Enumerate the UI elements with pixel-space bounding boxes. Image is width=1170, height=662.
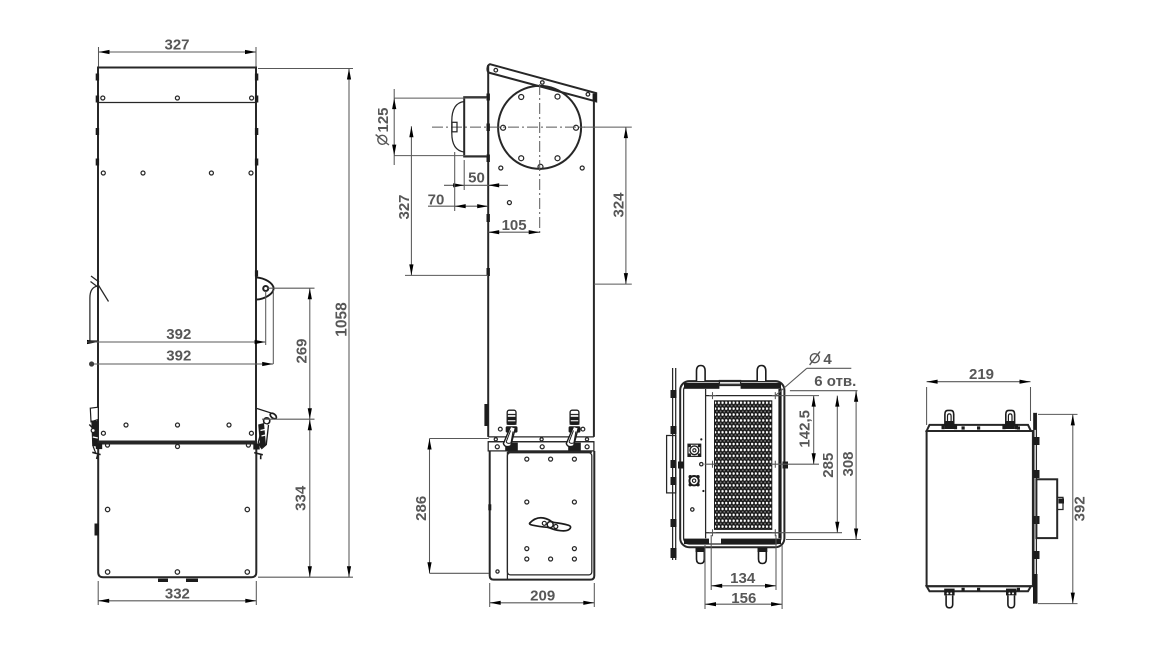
svg-text:392: 392 [1072, 496, 1089, 521]
svg-text:286: 286 [413, 496, 430, 521]
svg-text:134: 134 [730, 570, 756, 587]
svg-text:327: 327 [396, 194, 413, 219]
svg-text:4: 4 [823, 351, 832, 368]
svg-text:6 отв.: 6 отв. [814, 373, 856, 390]
svg-text:142,5: 142,5 [796, 410, 813, 448]
svg-text:392: 392 [166, 326, 191, 343]
svg-text:269: 269 [294, 338, 311, 363]
svg-text:308: 308 [840, 451, 857, 476]
svg-text:105: 105 [502, 217, 527, 234]
svg-text:219: 219 [969, 366, 994, 383]
svg-text:156: 156 [731, 590, 756, 607]
svg-text:392: 392 [166, 348, 191, 365]
svg-text:209: 209 [530, 588, 555, 605]
svg-text:332: 332 [165, 586, 190, 603]
svg-text:125: 125 [375, 107, 392, 132]
svg-text:327: 327 [164, 37, 189, 54]
svg-text:285: 285 [820, 453, 837, 478]
svg-text:70: 70 [428, 192, 445, 209]
svg-text:50: 50 [468, 170, 485, 187]
svg-text:324: 324 [611, 192, 628, 218]
svg-text:1058: 1058 [334, 302, 351, 337]
svg-text:334: 334 [293, 485, 310, 511]
